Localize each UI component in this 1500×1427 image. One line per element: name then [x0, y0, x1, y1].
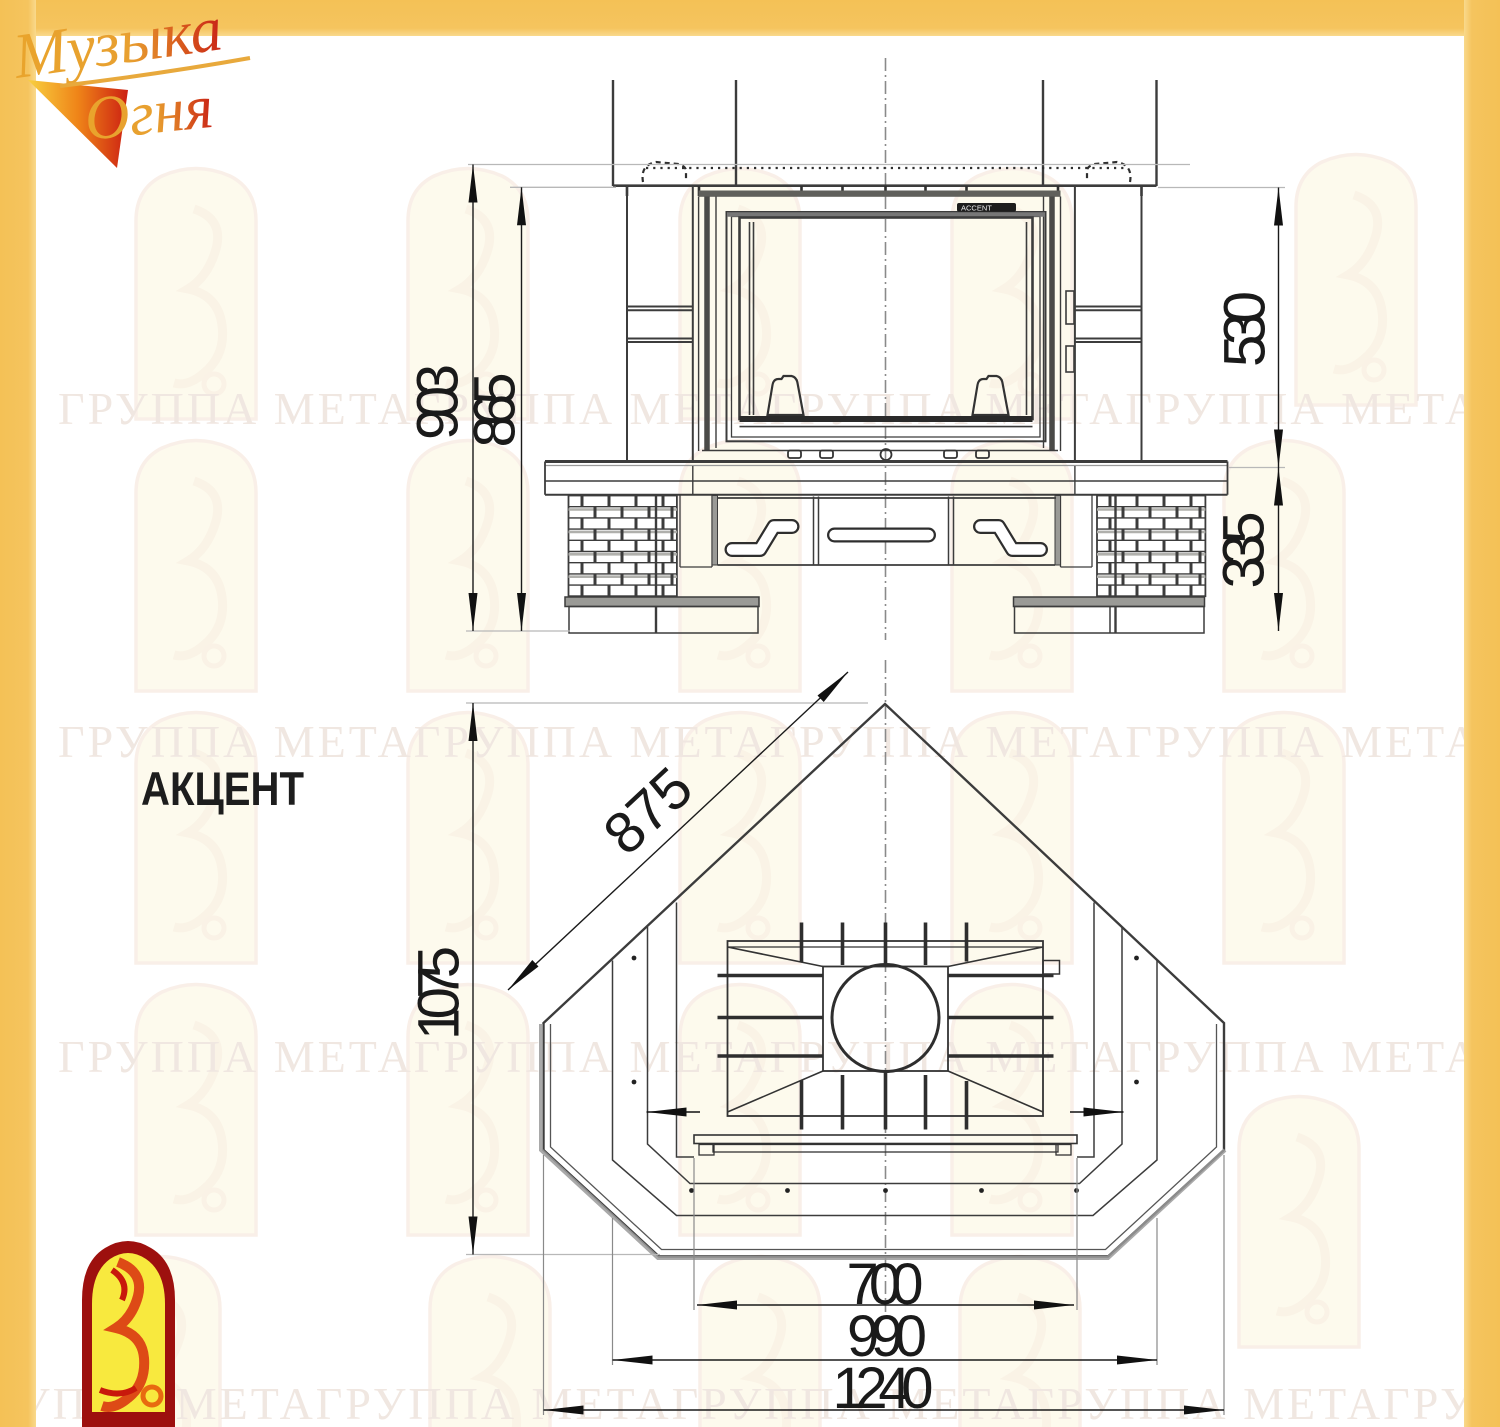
svg-text:530: 530	[1212, 291, 1277, 367]
svg-text:1075: 1075	[406, 946, 471, 1040]
svg-text:1240: 1240	[833, 1356, 934, 1421]
svg-text:ACCENT: ACCENT	[961, 203, 992, 212]
svg-text:АКЦЕНТ: АКЦЕНТ	[141, 762, 304, 815]
svg-text:Огня: Огня	[81, 73, 216, 154]
svg-text:865: 865	[462, 373, 527, 448]
svg-text:ГРУППА МЕТАГРУППА МЕТАГРУППА М: ГРУППА МЕТАГРУППА МЕТАГРУППА МЕТАГРУППА …	[58, 716, 1500, 767]
svg-text:335: 335	[1211, 512, 1276, 589]
svg-text:ГРУППА МЕТАГРУППА МЕТАГРУППА М: ГРУППА МЕТАГРУППА МЕТАГРУППА МЕТАГРУППА …	[0, 1378, 1500, 1427]
svg-text:903: 903	[405, 364, 470, 440]
